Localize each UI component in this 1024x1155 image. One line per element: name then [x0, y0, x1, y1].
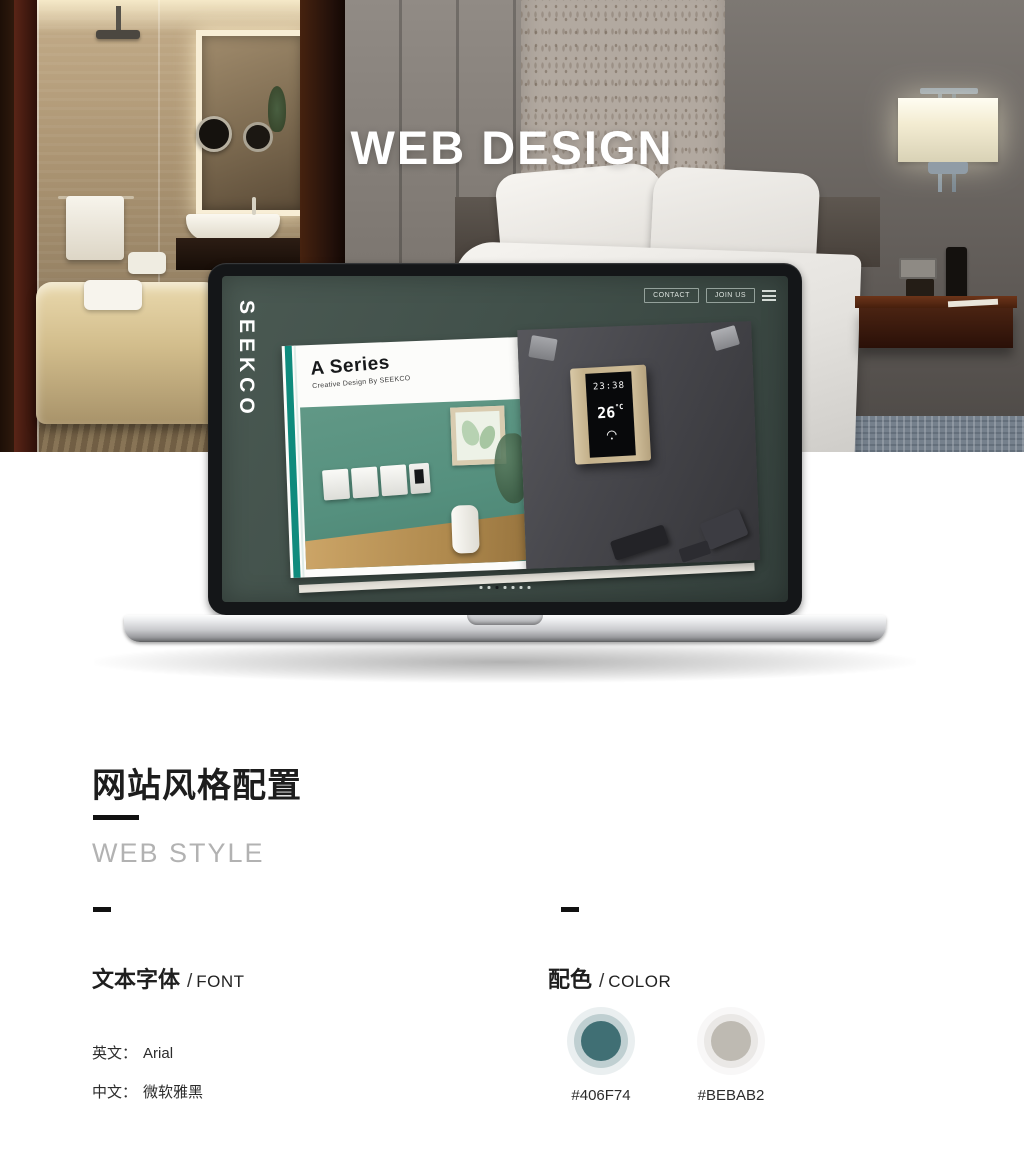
font-heading-cn: 文本字体	[92, 967, 180, 992]
laptop-mockup: SEEKCO CONTACT JOIN US A Series Creative…	[124, 253, 886, 683]
laptop-shadow	[94, 641, 916, 683]
color-hex-label: #406F74	[541, 1087, 661, 1104]
catalog-right-page: 23:38 26°C	[517, 321, 760, 569]
laptop-screen: SEEKCO CONTACT JOIN US A Series Creative…	[208, 263, 802, 615]
heading-separator: /	[187, 971, 192, 992]
font-item-value: Arial	[143, 1045, 173, 1062]
font-item-english: 英文：Arial	[92, 1042, 173, 1063]
color-heading-en: COLOR	[608, 972, 671, 991]
smart-thermostat: 23:38 26°C	[570, 365, 651, 465]
color-hex-label: #BEBAB2	[671, 1087, 791, 1104]
section-subtitle: WEB STYLE	[92, 838, 265, 869]
color-heading-cn: 配色	[548, 967, 592, 992]
site-nav: CONTACT JOIN US	[644, 288, 776, 303]
hanging-towel	[66, 196, 124, 260]
catalog-title: A Series	[310, 352, 391, 380]
thermostat-screen: 23:38 26°C	[585, 371, 636, 457]
color-swatch-teal	[581, 1021, 621, 1061]
light-switch	[380, 464, 408, 496]
font-item-label: 英文：	[92, 1045, 137, 1062]
thermostat-time: 23:38	[586, 380, 632, 393]
leaf-art	[477, 424, 498, 451]
wifi-icon	[606, 430, 616, 436]
nav-button-join[interactable]: JOIN US	[706, 288, 755, 303]
clock-device	[906, 279, 934, 297]
pagination-dot[interactable]	[496, 586, 499, 589]
section-title: 网站风格配置	[92, 758, 302, 807]
thermostat-temperature: 26°C	[587, 402, 634, 423]
wall-outlet	[899, 258, 937, 279]
wood-frame	[0, 0, 15, 452]
color-block-heading: 配色/COLOR	[548, 962, 671, 994]
pagination-dot[interactable]	[520, 586, 523, 589]
light-switch	[351, 467, 379, 499]
pagination-dot[interactable]	[488, 586, 491, 589]
faucet	[252, 197, 256, 215]
pagination-dot[interactable]	[504, 586, 507, 589]
indicator-dot	[611, 437, 613, 439]
website-screenshot: SEEKCO CONTACT JOIN US A Series Creative…	[222, 276, 788, 602]
pagination-dot[interactable]	[480, 586, 483, 589]
catalog-spread: A Series Creative Design By SEEKCO	[281, 321, 762, 587]
light-switch	[322, 469, 350, 501]
page: WEB DESIGN SEEKCO CONTACT JOIN US A Seri…	[0, 0, 1024, 1155]
light-switches	[322, 463, 431, 501]
font-item-label: 中文：	[92, 1084, 137, 1101]
ceiling-light-glow	[20, 0, 340, 34]
pagination-dots	[480, 586, 531, 589]
font-heading-en: FONT	[196, 972, 244, 991]
font-item-chinese: 中文：微软雅黑	[92, 1081, 203, 1102]
catalog-photo	[300, 399, 526, 569]
color-block-divider	[561, 907, 579, 912]
color-swatch-beige	[711, 1021, 751, 1061]
catalog-left-page: A Series Creative Design By SEEKCO	[282, 337, 527, 578]
hero-title: WEB DESIGN	[0, 120, 1024, 175]
pagination-dot[interactable]	[512, 586, 515, 589]
metal-plate	[610, 524, 669, 560]
sink-basin	[186, 214, 280, 241]
shower-arm	[116, 6, 121, 32]
switch-part	[710, 325, 740, 351]
font-block-divider	[93, 907, 111, 912]
title-divider	[93, 815, 139, 820]
hamburger-icon[interactable]	[762, 290, 776, 301]
wood-shelf	[300, 512, 526, 569]
site-logo: SEEKCO	[234, 300, 258, 419]
smart-switch-display	[409, 463, 431, 494]
metal-plate	[678, 540, 711, 563]
shower-head	[96, 30, 140, 39]
font-item-value: 微软雅黑	[143, 1084, 203, 1101]
laptop-base	[124, 615, 886, 642]
wood-panel	[14, 0, 37, 452]
heading-separator: /	[599, 971, 604, 992]
pagination-dot[interactable]	[528, 586, 531, 589]
wall-lamp-bracket	[920, 88, 978, 94]
nav-button-contact[interactable]: CONTACT	[644, 288, 699, 303]
hotel-phone	[946, 247, 967, 299]
switch-part	[528, 335, 557, 361]
laptop-notch	[467, 615, 543, 625]
white-speaker	[451, 505, 480, 554]
font-block-heading: 文本字体/FONT	[92, 962, 245, 994]
